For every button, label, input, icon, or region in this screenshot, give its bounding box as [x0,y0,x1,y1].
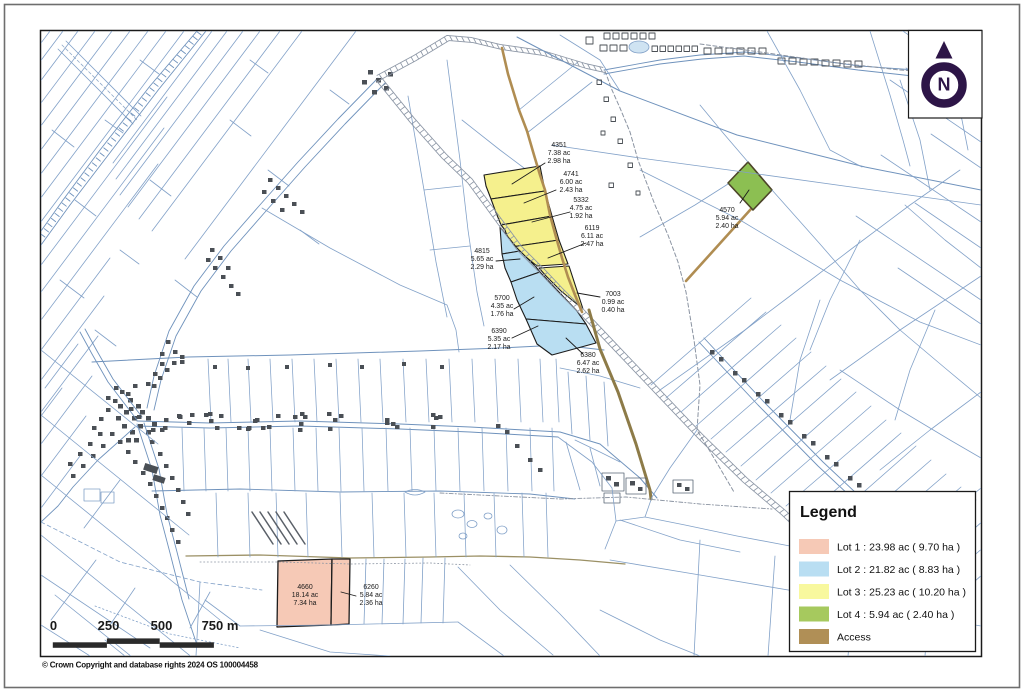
svg-text:Legend: Legend [800,504,857,521]
svg-text:5.84 ac: 5.84 ac [360,592,383,599]
svg-text:5332: 5332 [573,197,588,204]
svg-text:18.14 ac: 18.14 ac [292,592,319,599]
svg-text:© Crown Copyright and database: © Crown Copyright and database rights 20… [42,661,259,670]
svg-text:6.47 ac: 6.47 ac [577,360,600,367]
svg-text:4351: 4351 [551,142,566,149]
svg-text:Access: Access [837,632,871,644]
svg-text:0: 0 [50,618,57,633]
svg-text:N: N [938,75,951,95]
svg-text:5700: 5700 [494,295,509,302]
svg-text:500: 500 [151,618,173,633]
svg-text:750 m: 750 m [202,618,239,633]
svg-text:0.40 ha: 0.40 ha [602,307,625,314]
svg-text:6.11 ac: 6.11 ac [581,233,604,240]
svg-text:1.76 ha: 1.76 ha [491,311,514,318]
svg-text:2.98 ha: 2.98 ha [548,158,571,165]
svg-text:2.36 ha: 2.36 ha [360,600,383,607]
svg-text:2.62 ha: 2.62 ha [577,368,600,375]
svg-text:4.35 ac: 4.35 ac [491,303,514,310]
svg-text:7.38 ac: 7.38 ac [548,150,571,157]
svg-text:250: 250 [98,618,120,633]
svg-text:5.35 ac: 5.35 ac [488,336,511,343]
svg-text:7.34 ha: 7.34 ha [294,600,317,607]
svg-text:7003: 7003 [605,291,620,298]
svg-text:4741: 4741 [563,171,578,178]
svg-text:Lot 4 : 5.94 ac ( 2.40 ha ): Lot 4 : 5.94 ac ( 2.40 ha ) [837,609,954,621]
svg-text:4815: 4815 [474,248,489,255]
svg-text:6390: 6390 [491,328,506,335]
svg-text:0.99 ac: 0.99 ac [602,299,625,306]
svg-text:Lot 1 : 23.98 ac ( 9.70 ha ): Lot 1 : 23.98 ac ( 9.70 ha ) [837,542,960,554]
svg-text:6380: 6380 [580,352,595,359]
svg-text:5.65 ac: 5.65 ac [471,256,494,263]
svg-text:5.94 ac: 5.94 ac [716,215,739,222]
svg-text:4570: 4570 [719,207,734,214]
svg-text:Lot 3 : 25.23 ac ( 10.20 ha ): Lot 3 : 25.23 ac ( 10.20 ha ) [837,587,966,599]
svg-text:2.47 ha: 2.47 ha [581,241,604,248]
svg-text:2.17 ha: 2.17 ha [488,344,511,351]
svg-text:2.29 ha: 2.29 ha [471,264,494,271]
svg-text:4660: 4660 [297,584,312,591]
svg-text:2.40 ha: 2.40 ha [716,223,739,230]
svg-text:6260: 6260 [363,584,378,591]
svg-text:6.00 ac: 6.00 ac [560,179,583,186]
svg-text:1.92 ha: 1.92 ha [570,213,593,220]
svg-text:Lot 2 : 21.82 ac ( 8.83 ha ): Lot 2 : 21.82 ac ( 8.83 ha ) [837,564,960,576]
svg-text:4.75 ac: 4.75 ac [570,205,593,212]
svg-text:2.43 ha: 2.43 ha [560,187,583,194]
svg-text:6119: 6119 [585,225,600,232]
